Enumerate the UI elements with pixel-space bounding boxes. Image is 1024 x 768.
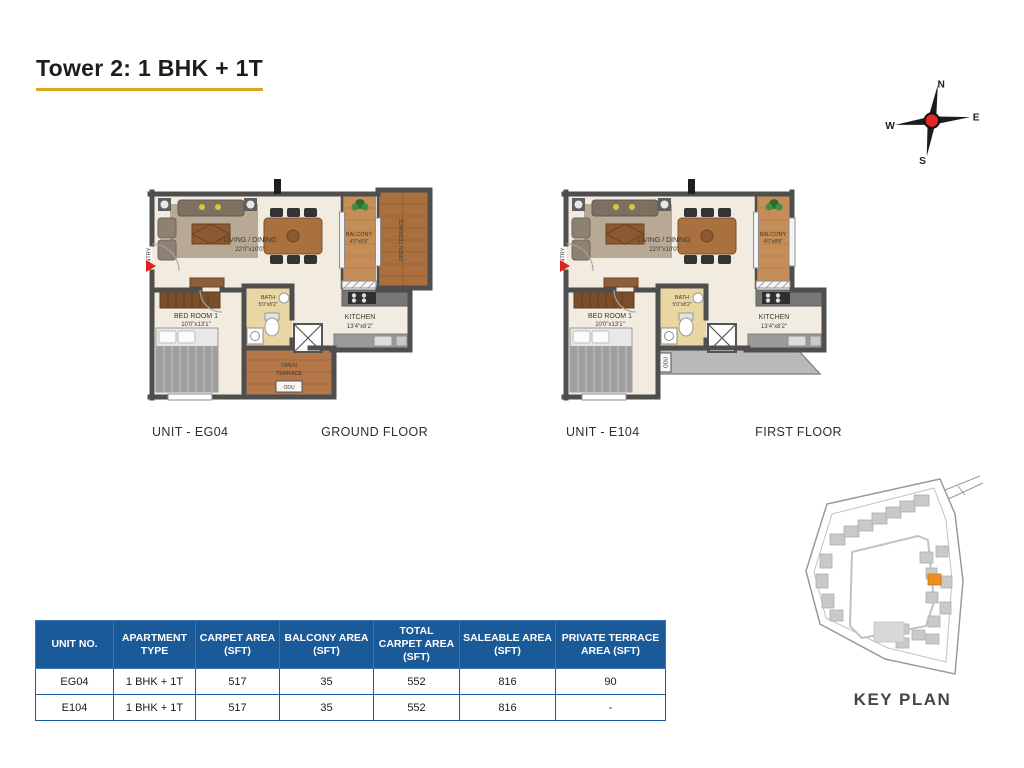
table-header-row: UNIT NO. APARTMENT TYPE CARPET AREA (SFT…: [36, 621, 666, 669]
living-dim: 22'0"x10'0": [649, 247, 679, 253]
open-terrace-bottom-label-2: TERRACE: [276, 371, 303, 377]
cell: E104: [36, 695, 114, 721]
floor-label-first: FIRST FLOOR: [755, 425, 842, 439]
bedroom-furniture: [156, 292, 220, 392]
unit-label-eg04: UNIT - EG04: [152, 425, 228, 439]
page: Tower 2: 1 BHK + 1T N E S W: [0, 0, 1024, 768]
odu-label: ODU: [664, 357, 670, 369]
odu-label: ODU: [283, 385, 295, 391]
compass-s-label: S: [919, 156, 926, 166]
balcony-dim: 4'0"x8'8": [763, 239, 782, 245]
compass-n-label: N: [938, 79, 945, 90]
compass-star: [895, 85, 970, 157]
kitchen-label: KITCHEN: [759, 314, 790, 321]
cell: 517: [196, 669, 280, 695]
header-unit-no: UNIT NO.: [36, 621, 114, 669]
kitchen-label: KITCHEN: [345, 314, 376, 321]
site-boundary: [806, 476, 983, 674]
table-row-e104: E104 1 BHK + 1T 517 35 552 816 -: [36, 695, 666, 721]
bedroom-furniture: [570, 292, 634, 392]
cell: 517: [196, 695, 280, 721]
bath-dim: 5'0"x8'2": [258, 302, 277, 308]
bedroom-dim: 10'0"x13'1": [181, 322, 211, 328]
bath-label: BATH: [261, 295, 275, 301]
cell: 552: [374, 695, 460, 721]
balcony-label: BALCONY: [346, 232, 373, 238]
open-terrace-side-label: OPEN TERRACE: [399, 218, 405, 262]
floor-plan-eg04: ENTRY LIVING / DINING 22'0"x10'0" BALCON…: [144, 178, 436, 410]
cell: EG04: [36, 669, 114, 695]
plan-eg04: ENTRY LIVING / DINING 22'0"x10'0" BALCON…: [144, 178, 436, 439]
open-terrace-bottom-label-1: OPEN: [281, 363, 297, 369]
living-label: LIVING / DINING: [223, 237, 276, 244]
compass-icon: N E S W: [885, 76, 983, 166]
compass-e-label: E: [973, 113, 980, 124]
unit-label-e104: UNIT - E104: [566, 425, 640, 439]
key-plan-map: [800, 474, 1005, 686]
bedroom-label: BED ROOM 1: [174, 313, 218, 320]
plan-e104: ENTRY LIVING / DINING 22'0"x10'0" BALCON…: [558, 178, 850, 439]
compass-w-label: W: [885, 121, 895, 132]
header-carpet-area: CARPET AREA (SFT): [196, 621, 280, 669]
cell: 816: [460, 669, 556, 695]
table-row-eg04: EG04 1 BHK + 1T 517 35 552 816 90: [36, 669, 666, 695]
header-saleable-area: SALEABLE AREA (SFT): [460, 621, 556, 669]
floor-plan-e104: ENTRY LIVING / DINING 22'0"x10'0" BALCON…: [558, 178, 850, 410]
header-private-terrace-area: PRIVATE TERRACE AREA (SFT): [556, 621, 666, 669]
cell: 1 BHK + 1T: [114, 695, 196, 721]
balcony-dim: 4'0"x8'8": [349, 239, 368, 245]
bedroom-label: BED ROOM 1: [588, 313, 632, 320]
cell: 816: [460, 695, 556, 721]
header-total-carpet-area: TOTAL CARPET AREA (SFT): [374, 621, 460, 669]
cell: 1 BHK + 1T: [114, 669, 196, 695]
area-table: UNIT NO. APARTMENT TYPE CARPET AREA (SFT…: [35, 620, 666, 721]
bedroom-dim: 10'0"x13'1": [595, 322, 625, 328]
cell: 552: [374, 669, 460, 695]
kitchen-dim: 13'4"x8'2": [347, 324, 373, 330]
cell: 35: [280, 695, 374, 721]
bath-label: BATH: [675, 295, 689, 301]
kitchen-dim: 13'4"x8'2": [761, 324, 787, 330]
cell: 90: [556, 669, 666, 695]
living-dim: 22'0"x10'0": [235, 247, 265, 253]
balcony-label: BALCONY: [760, 232, 787, 238]
cell: -: [556, 695, 666, 721]
header-apartment-type: APARTMENT TYPE: [114, 621, 196, 669]
highlighted-tower: [928, 574, 941, 585]
bath-dim: 5'0"x8'2": [672, 302, 691, 308]
key-plan-label: KEY PLAN: [800, 690, 1005, 710]
living-label: LIVING / DINING: [637, 237, 690, 244]
page-title: Tower 2: 1 BHK + 1T: [36, 55, 263, 91]
header-balcony-area: BALCONY AREA (SFT): [280, 621, 374, 669]
floor-label-ground: GROUND FLOOR: [321, 425, 428, 439]
cell: 35: [280, 669, 374, 695]
